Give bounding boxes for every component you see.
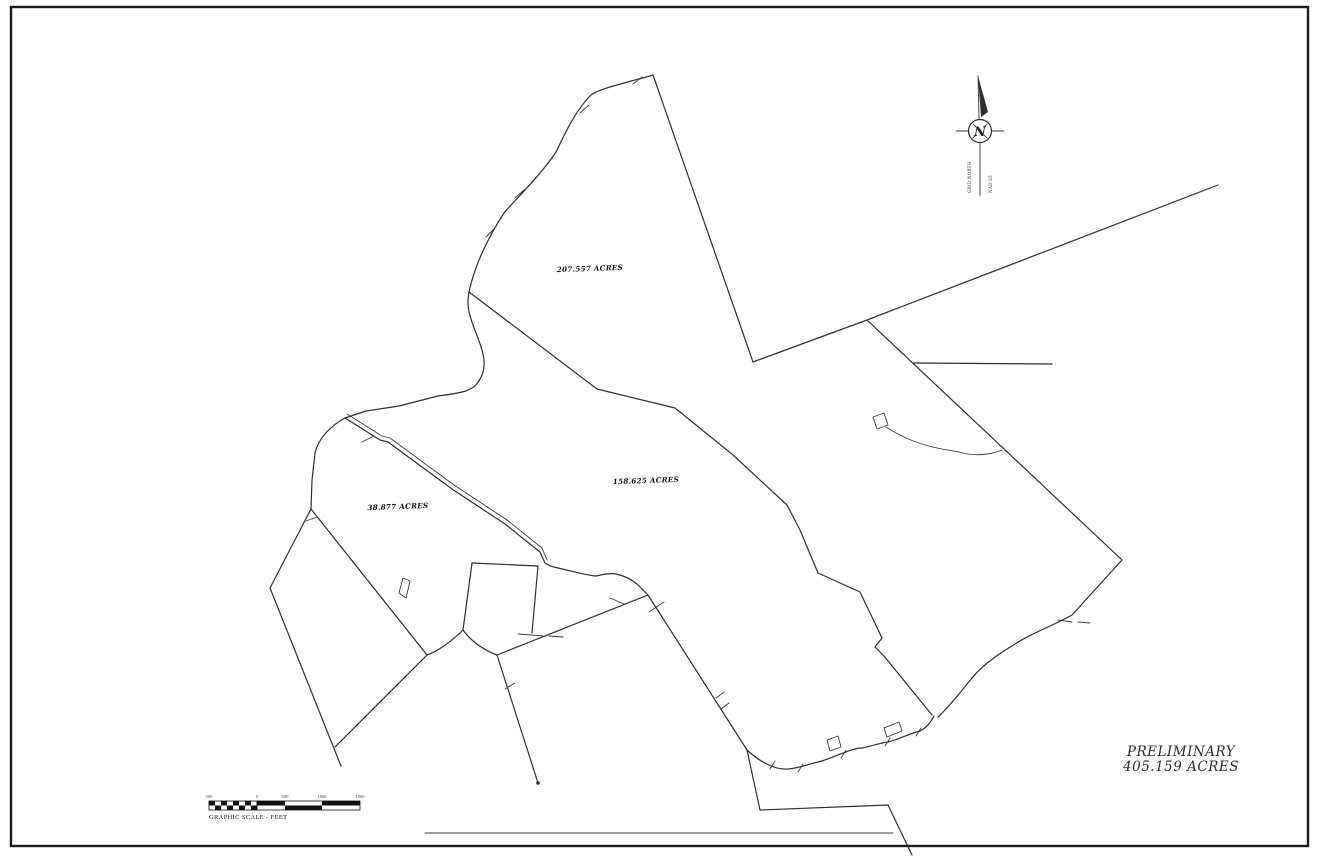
curve-c-e <box>463 630 497 655</box>
preliminary-line1: PRELIMINARY <box>1126 744 1236 760</box>
svg-text:0: 0 <box>256 794 259 799</box>
acreage-labels: 207.557 ACRES 158.625 ACRES 38.877 ACRES <box>367 263 679 512</box>
building-northeast <box>873 413 888 429</box>
parcel-label-158: 158.625 ACRES <box>613 475 679 486</box>
northeast-long-line <box>753 185 1218 362</box>
parcel-boundaries <box>270 75 1218 855</box>
dash-stub-east <box>1058 620 1090 623</box>
scale-tick-labels: 500 0 500 1000 1500 <box>206 794 366 799</box>
point-g-marker <box>536 781 540 785</box>
svg-text:500: 500 <box>282 794 290 799</box>
boundary-scurve-lower <box>468 292 484 387</box>
svg-text:500: 500 <box>206 794 214 799</box>
building-south-2 <box>884 722 902 737</box>
north-letter: N <box>973 125 987 140</box>
west-boundary-38 <box>270 509 341 766</box>
boundary-f-h <box>648 595 747 750</box>
east-stub-line <box>913 363 1052 364</box>
curve-38-to-c <box>427 630 463 655</box>
boundary-north-scurve <box>469 75 653 292</box>
pond-west <box>399 578 410 598</box>
fence-a-c <box>463 563 472 630</box>
line-e-g <box>497 655 538 783</box>
north-note-left: GRID NORTH <box>967 161 972 193</box>
fence-a-b <box>472 563 538 566</box>
parcel-label-38: 38.877 ACRES <box>367 501 428 512</box>
survey-tick-marks <box>306 77 921 772</box>
north-note-right: NAD 83 <box>988 175 993 193</box>
structures <box>399 413 1002 751</box>
preliminary-note: PRELIMINARY 405.159 ACRES <box>1122 744 1239 775</box>
north-arrow: N GRID NORTH NAD 83 <box>956 76 1004 196</box>
graphic-scale-bar: 500 0 500 1000 1500 GRAPHIC SCALE - FEET <box>206 794 366 821</box>
line-e-f <box>497 595 648 655</box>
building-south-1 <box>827 736 841 751</box>
sheet-border <box>11 7 1308 846</box>
east-boundary <box>867 320 1122 560</box>
survey-drawing: N GRID NORTH NAD 83 207.557 ACRES 158.62… <box>0 0 1319 857</box>
road-upper-curve <box>345 387 474 418</box>
boundary-apex-east <box>653 75 753 362</box>
north-needle-flag <box>978 76 988 117</box>
plat-sheet: N GRID NORTH NAD 83 207.557 ACRES 158.62… <box>0 0 1319 857</box>
fence-b-d <box>532 566 538 633</box>
svg-text:1500: 1500 <box>355 794 365 799</box>
preliminary-line2: 405.159 ACRES <box>1122 759 1239 775</box>
road-double-offset <box>347 414 547 560</box>
parcel-label-207: 207.557 ACRES <box>556 263 623 274</box>
interior-chain <box>469 292 932 715</box>
scale-caption: GRAPHIC SCALE - FEET <box>209 814 287 821</box>
svg-text:1000: 1000 <box>317 794 327 799</box>
south-line-38 <box>335 655 427 747</box>
east-lower-boundary <box>938 560 1122 717</box>
west-edge-curve <box>311 418 345 509</box>
